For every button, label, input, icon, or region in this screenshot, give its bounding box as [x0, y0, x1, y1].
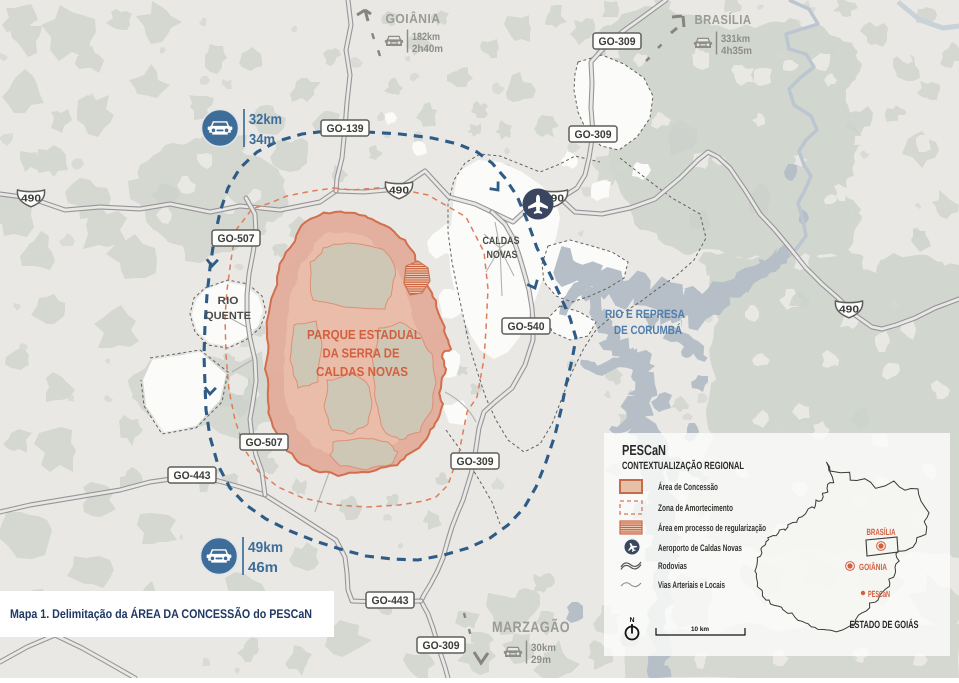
svg-text:Mapa 1. Delimitação da ÁREA DA: Mapa 1. Delimitação da ÁREA DA CONCESSÃO…	[10, 606, 312, 621]
svg-text:34m: 34m	[249, 132, 275, 148]
svg-text:GO-540: GO-540	[508, 321, 545, 333]
svg-text:GO-507: GO-507	[218, 233, 255, 245]
svg-text:BRASÍLIA: BRASÍLIA	[867, 527, 896, 537]
svg-text:490: 490	[839, 305, 860, 316]
svg-text:ESTADO DE GOIÁS: ESTADO DE GOIÁS	[850, 618, 919, 631]
svg-text:QUENTE: QUENTE	[205, 310, 251, 322]
svg-text:PESCaN: PESCaN	[868, 589, 890, 599]
svg-text:GO-309: GO-309	[457, 456, 494, 468]
svg-text:PESCaN: PESCaN	[622, 443, 666, 459]
svg-text:10 km: 10 km	[691, 626, 709, 633]
svg-text:N: N	[629, 617, 634, 624]
svg-text:MARZAGÃO: MARZAGÃO	[492, 618, 570, 636]
svg-text:46m: 46m	[248, 560, 278, 576]
svg-text:PARQUE ESTADUAL: PARQUE ESTADUAL	[307, 327, 421, 342]
svg-text:GO-139: GO-139	[327, 123, 364, 135]
svg-text:CONTEXTUALIZAÇÃO REGIONAL: CONTEXTUALIZAÇÃO REGIONAL	[622, 459, 744, 472]
svg-text:GO-309: GO-309	[575, 129, 612, 141]
svg-text:331km: 331km	[721, 33, 750, 45]
svg-text:CALDAS NOVAS: CALDAS NOVAS	[316, 364, 408, 379]
svg-text:Área de Concessão: Área de Concessão	[658, 481, 718, 493]
svg-text:29m: 29m	[531, 654, 551, 666]
svg-text:Aeroporto de Caldas Novas: Aeroporto de Caldas Novas	[658, 543, 742, 554]
svg-text:49km: 49km	[248, 540, 283, 556]
svg-text:GO-309: GO-309	[599, 36, 636, 48]
svg-text:GO-309: GO-309	[423, 640, 460, 652]
svg-text:RIO E REPRESA: RIO E REPRESA	[605, 307, 685, 321]
svg-text:2h40m: 2h40m	[412, 43, 443, 55]
svg-text:GO-443: GO-443	[174, 470, 211, 482]
svg-text:DE CORUMBÁ: DE CORUMBÁ	[614, 323, 682, 337]
svg-text:Zona de Amortecimento: Zona de Amortecimento	[658, 503, 733, 514]
svg-text:BRASÍLIA: BRASÍLIA	[695, 12, 752, 27]
svg-text:30km: 30km	[531, 642, 556, 654]
svg-text:CALDAS: CALDAS	[483, 235, 520, 247]
svg-text:32km: 32km	[249, 112, 282, 128]
svg-text:Vias Arteriais e Locais: Vias Arteriais e Locais	[658, 580, 725, 591]
svg-text:GO-507: GO-507	[246, 437, 283, 449]
svg-text:GOIÂNIA: GOIÂNIA	[386, 11, 441, 26]
svg-text:GO-443: GO-443	[372, 595, 409, 607]
svg-text:Área em processo de regulariza: Área em processo de regularização	[658, 522, 766, 534]
svg-text:NOVAS: NOVAS	[487, 249, 518, 261]
svg-text:DA SERRA DE: DA SERRA DE	[323, 346, 400, 361]
svg-text:182km: 182km	[412, 31, 440, 43]
svg-text:RIO: RIO	[218, 295, 239, 307]
svg-text:490: 490	[21, 194, 42, 205]
svg-text:4h35m: 4h35m	[721, 45, 752, 57]
svg-text:490: 490	[389, 186, 410, 197]
svg-text:GOIÂNIA: GOIÂNIA	[859, 561, 887, 572]
svg-text:Rodovias: Rodovias	[658, 561, 687, 572]
